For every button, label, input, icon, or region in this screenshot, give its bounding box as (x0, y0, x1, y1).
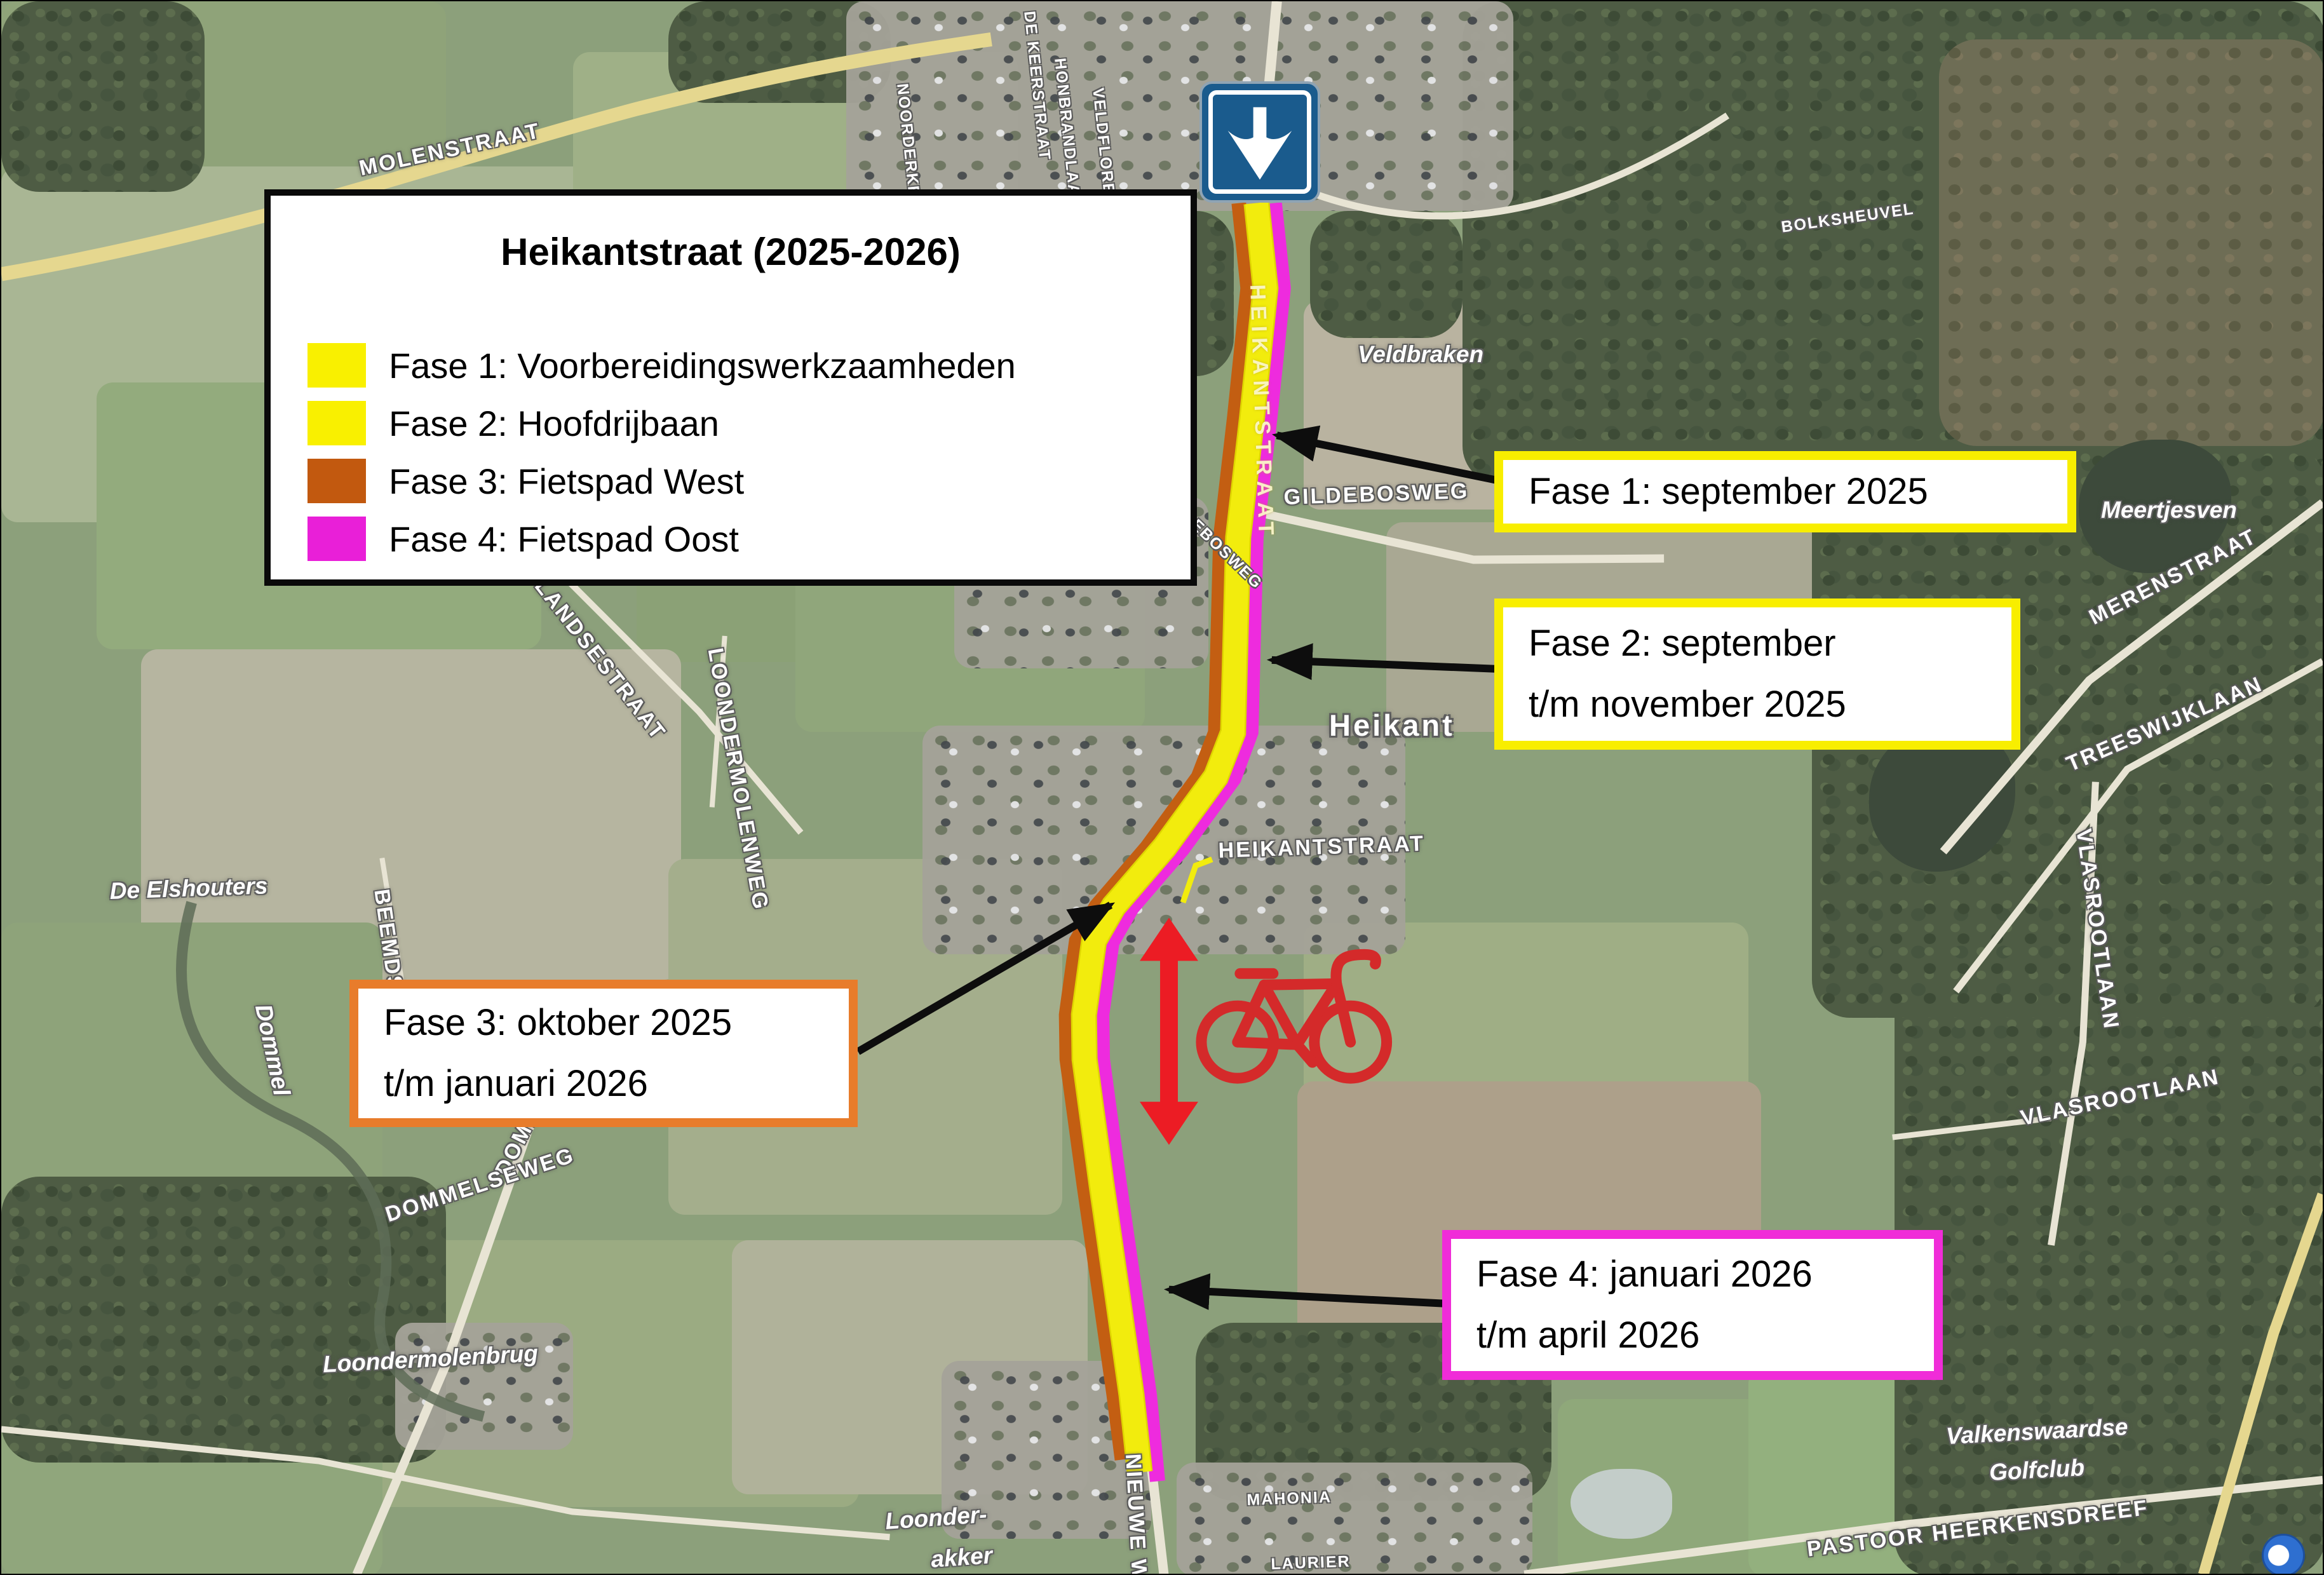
callout-text: t/m april 2026 (1476, 1305, 1934, 1366)
callout-fase1: Fase 1: september 2025 (1494, 451, 2076, 532)
legend-color-swatch (307, 459, 366, 503)
legend-row: Fase 3: Fietspad West (307, 458, 1191, 504)
map-label: Veldbraken (1358, 341, 1483, 368)
map-label: Dommel (250, 1002, 295, 1098)
callout-fase4: Fase 4: januari 2026t/m april 2026 (1442, 1230, 1943, 1380)
map-label: GILDEBOSWEG (1283, 479, 1469, 510)
map-label: LAURIER (1271, 1553, 1351, 1574)
legend-row: Fase 1: Voorbereidingswerkzaamheden (307, 342, 1191, 388)
legend-title: Heikantstraat (2025-2026) (271, 230, 1191, 274)
legend-color-swatch (307, 517, 366, 561)
map-label: Loondermolenbrug (322, 1340, 539, 1378)
map-label: MAHONIA (1246, 1488, 1332, 1510)
map-label: HEIKANTSTRAAT (1245, 284, 1278, 541)
callout-text: t/m november 2025 (1529, 674, 2011, 735)
map-label: Valkenswaardse (1945, 1414, 2128, 1450)
callout-text: Fase 2: september (1529, 613, 2011, 674)
map-label: LANDSESTRAAT (529, 574, 670, 745)
map-label: Golfclub (1989, 1454, 2085, 1486)
map-label: De Elshouters (109, 872, 268, 905)
map-label: MERENSTRAAT (2085, 524, 2261, 630)
map-label: Loonder- (884, 1501, 988, 1535)
legend-items: Fase 1: VoorbereidingswerkzaamhedenFase … (307, 342, 1191, 562)
legend-color-swatch (307, 401, 366, 445)
map-label: akker (930, 1542, 993, 1573)
callout-text: Fase 4: januari 2026 (1476, 1244, 1934, 1305)
callout-text: Fase 1: september 2025 (1529, 461, 2067, 522)
legend-item-label: Fase 4: Fietspad Oost (389, 518, 739, 560)
map-label: BOLKSHEUVEL (1780, 200, 1915, 237)
map-label: MOLENSTRAAT (357, 118, 543, 181)
map-label: HEIKANTSTRAAT (1218, 832, 1426, 863)
legend-item-label: Fase 3: Fietspad West (389, 461, 744, 502)
map-label: PASTOOR HEERKENSDREEF (1806, 1496, 2150, 1562)
legend-item-label: Fase 2: Hoofdrijbaan (389, 403, 719, 444)
legend-panel: Heikantstraat (2025-2026) Fase 1: Voorbe… (264, 189, 1197, 586)
down-arrow-icon (1213, 95, 1307, 189)
legend-row: Fase 4: Fietspad Oost (307, 516, 1191, 562)
map-label: DOMMELSEWEG (382, 1143, 578, 1227)
callout-fase3: Fase 3: oktober 2025t/m januari 2026 (349, 980, 858, 1127)
map-label: TREESWIJKLAAN (2063, 672, 2267, 777)
map-screenshot: MOLENSTRAATNOORDERKERKPADDE KEERSTRAATHO… (0, 0, 2324, 1575)
map-label: VLASROOTLAAN (2071, 827, 2123, 1032)
map-label: NIEUWE WAALRESEWEG (1120, 1453, 1161, 1575)
legend-row: Fase 2: Hoofdrijbaan (307, 400, 1191, 446)
legend-color-swatch (307, 343, 366, 388)
callout-text: Fase 3: oktober 2025 (384, 992, 849, 1053)
sign-inner-border (1208, 90, 1311, 194)
one-way-down-arrow-sign (1199, 81, 1320, 203)
map-label: DE KEERSTRAAT (1020, 10, 1054, 161)
legend-item-label: Fase 1: Voorbereidingswerkzaamheden (389, 345, 1016, 386)
map-label: Heikant (1329, 708, 1455, 743)
map-label: Meertjesven (2101, 497, 2237, 524)
map-label: LOONDERMOLENWEG (703, 646, 773, 912)
callout-text: t/m januari 2026 (384, 1053, 849, 1114)
callout-fase2: Fase 2: septembert/m november 2025 (1494, 598, 2020, 750)
map-label: VLASROOTLAAN (2018, 1065, 2222, 1132)
map-label: HONBRANDLAAN (1050, 57, 1084, 210)
